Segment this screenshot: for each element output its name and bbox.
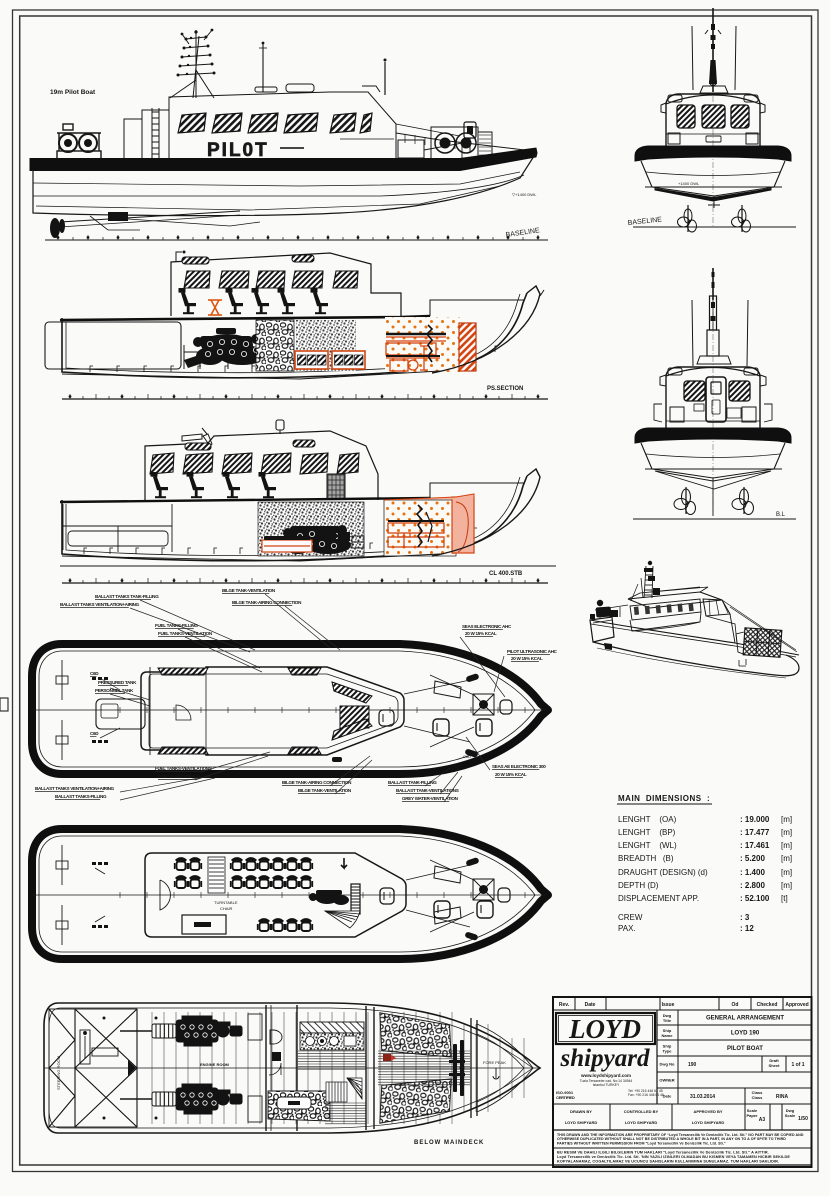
svg-text:BU RESIM VE DAHILI ILGILI BILG: BU RESIM VE DAHILI ILGILI BILGILERIN TUM… <box>557 1151 769 1155</box>
svg-text:APPROVED BY: APPROVED BY <box>693 1109 722 1114</box>
svg-text:RINA: RINA <box>776 1094 789 1100</box>
svg-text:190: 190 <box>688 1062 697 1068</box>
svg-text:Fax: +90 216 446 61 46: Fax: +90 216 446 61 46 <box>628 1093 664 1097</box>
svg-text:BILGE TANK-VENTILATION: BILGE TANK-VENTILATION <box>222 588 276 593</box>
svg-text:shipyard: shipyard <box>560 1045 650 1072</box>
svg-text:Title: Title <box>663 1018 672 1023</box>
svg-text:: 17.477: : 17.477 <box>740 828 770 837</box>
svg-text:PAX.: PAX. <box>618 924 636 933</box>
svg-text:ENGINE ROOM: ENGINE ROOM <box>200 1062 230 1067</box>
svg-text:Od: Od <box>732 1002 739 1008</box>
svg-text:LOYD 190: LOYD 190 <box>731 1031 760 1037</box>
svg-text:GREY WATER-VENTILATION: GREY WATER-VENTILATION <box>402 796 459 801</box>
svg-text:Name: Name <box>662 1033 674 1038</box>
svg-text:OWNER: OWNER <box>659 1078 674 1083</box>
svg-text:PERSONNEL TANK: PERSONNEL TANK <box>95 688 134 693</box>
svg-text:LOYD SHIPYARD: LOYD SHIPYARD <box>625 1120 658 1125</box>
svg-text:1/50: 1/50 <box>798 1116 808 1122</box>
svg-text:LOYD: LOYD <box>568 1014 641 1044</box>
svg-text:BALLAST TANK-VENTILATIONS: BALLAST TANK-VENTILATIONS <box>396 788 459 793</box>
svg-text:LENGHT (BP): LENGHT (BP) <box>618 828 676 837</box>
svg-text:PILOT BOAT: PILOT BOAT <box>727 1046 763 1052</box>
svg-text:SEAS AE ELECTRONIC 300: SEAS AE ELECTRONIC 300 <box>492 764 546 769</box>
svg-text:: 12: : 12 <box>740 924 754 933</box>
svg-text:: 5.200: : 5.200 <box>740 854 765 863</box>
svg-text:TURNTABLE: TURNTABLE <box>214 900 238 905</box>
svg-text:: 52.100: : 52.100 <box>740 894 770 903</box>
svg-text:KOPYALANAMAZ, COGALTILAMAZ VE: KOPYALANAMAZ, COGALTILAMAZ VE UCUNCU SAH… <box>557 1159 779 1163</box>
svg-text:BALLAST TANKS VENTILATION+AIRI: BALLAST TANKS VENTILATION+AIRING <box>35 786 115 791</box>
svg-text:PIL0T: PIL0T <box>207 140 269 161</box>
svg-text:FORE PEAK: FORE PEAK <box>483 1060 506 1065</box>
svg-text:Loyd Tersanecilik ve Denizcili: Loyd Tersanecilik ve Denizcilik Tic. Ltd… <box>557 1155 790 1159</box>
svg-text:DRAWN BY: DRAWN BY <box>570 1109 592 1114</box>
svg-text:Dwg No: Dwg No <box>660 1062 675 1067</box>
svg-text:[m]: [m] <box>781 854 792 863</box>
svg-text:B.L: B.L <box>776 512 786 518</box>
svg-text:Class: Class <box>752 1095 763 1100</box>
svg-text:LOYD SHIPYARD: LOYD SHIPYARD <box>692 1120 725 1125</box>
svg-text:DRAUGHT (DESIGN) (d): DRAUGHT (DESIGN) (d) <box>618 868 708 877</box>
svg-text:PS.SECTION: PS.SECTION <box>487 386 523 392</box>
svg-text:: 17.461: : 17.461 <box>740 841 770 850</box>
svg-text:C6D: C6D <box>463 754 471 759</box>
svg-text:: 3: : 3 <box>740 913 750 922</box>
svg-text:C6D: C6D <box>90 671 99 676</box>
svg-text:Type: Type <box>662 1049 672 1054</box>
svg-text:BILGE TANK-VENTILATION: BILGE TANK-VENTILATION <box>298 788 352 793</box>
svg-text:Scale: Scale <box>785 1113 796 1118</box>
svg-text:20 W 15% KCAL: 20 W 15% KCAL <box>511 656 543 661</box>
svg-text:CREW: CREW <box>618 913 643 922</box>
svg-text:CHAIR: CHAIR <box>220 906 233 911</box>
svg-text:1 of 1: 1 of 1 <box>791 1062 804 1068</box>
svg-text:[m]: [m] <box>781 868 792 877</box>
svg-text:PARTIES WITHOUT WRITTEN PERM: PARTIES WITHOUT WRITTEN PERMISSION FROM … <box>557 1141 726 1145</box>
svg-text:www.loydshipyard.com: www.loydshipyard.com <box>580 1073 631 1078</box>
svg-text:BALLAST TANKS TANK-FILLING: BALLAST TANKS TANK-FILLING <box>95 594 159 599</box>
svg-text:FUEL TANKS-VENTILATIONS: FUEL TANKS-VENTILATIONS <box>155 766 212 771</box>
svg-text:C6D: C6D <box>456 650 464 655</box>
svg-text:19m Pilot Boat: 19m Pilot Boat <box>50 89 96 96</box>
svg-text:Date: Date <box>663 1094 672 1099</box>
svg-text:: 1.400: : 1.400 <box>740 868 765 877</box>
svg-text:▽+1400 DWL: ▽+1400 DWL <box>512 192 537 197</box>
svg-text:Sheet: Sheet <box>769 1063 781 1068</box>
svg-text:C6D: C6D <box>90 731 99 736</box>
svg-text:FUEL TANKS-FILLING: FUEL TANKS-FILLING <box>158 774 201 779</box>
svg-text:BALLAST TANKS-FILLING: BALLAST TANKS-FILLING <box>55 794 107 799</box>
svg-text:+1400 DWL: +1400 DWL <box>678 181 700 186</box>
svg-text:Checked: Checked <box>757 1002 778 1008</box>
svg-text:DISPLACEMENT APP.: DISPLACEMENT APP. <box>618 894 699 903</box>
svg-text:Istanbul TURKEY: Istanbul TURKEY <box>593 1083 620 1087</box>
svg-text:DEPTH (D): DEPTH (D) <box>618 881 659 890</box>
svg-text:CONTROLLED BY: CONTROLLED BY <box>624 1109 659 1114</box>
svg-text:LENGHT (WL): LENGHT (WL) <box>618 841 677 850</box>
svg-text:BILGE TANK-AIRING CONNECTION: BILGE TANK-AIRING CONNECTION <box>232 600 302 605</box>
svg-text:PILOT ULTRASONIC AHC: PILOT ULTRASONIC AHC <box>507 649 558 654</box>
svg-text:[m]: [m] <box>781 828 792 837</box>
svg-text:CERTIFIED: CERTIFIED <box>556 1095 575 1100</box>
svg-text:STEERING ROOM: STEERING ROOM <box>56 1056 61 1090</box>
svg-text:MAIN DIMENSIONS :: MAIN DIMENSIONS : <box>618 794 710 803</box>
svg-text:Date: Date <box>585 1002 596 1008</box>
svg-text:[t]: [t] <box>781 894 788 903</box>
svg-text:[m]: [m] <box>781 881 792 890</box>
svg-text:: 2.800: : 2.800 <box>740 881 765 890</box>
svg-text:20 W 15% KCAL: 20 W 15% KCAL <box>495 772 527 777</box>
svg-text:FUEL TANKS-FILLING: FUEL TANKS-FILLING <box>155 623 198 628</box>
svg-text:LENGHT (OA): LENGHT (OA) <box>618 815 677 824</box>
svg-text:CL 400.STB: CL 400.STB <box>489 571 523 577</box>
svg-text:31.03.2014: 31.03.2014 <box>690 1094 715 1100</box>
svg-text:SEAS ELECTRONIC AHC: SEAS ELECTRONIC AHC <box>462 624 512 629</box>
svg-text:FUEL TANKS-VENTILATION: FUEL TANKS-VENTILATION <box>158 631 213 636</box>
svg-text:A3: A3 <box>759 1117 766 1123</box>
svg-text:BREADTH (B): BREADTH (B) <box>618 854 674 863</box>
svg-text:BALLAST TANKS VENTILATION+AIRI: BALLAST TANKS VENTILATION+AIRING <box>60 602 140 607</box>
svg-text:Issue: Issue <box>662 1002 675 1008</box>
svg-text:: 19.000: : 19.000 <box>740 815 770 824</box>
svg-text:Approved: Approved <box>785 1002 808 1008</box>
svg-text:BELOW MAINDECK: BELOW MAINDECK <box>414 1140 484 1146</box>
svg-text:Paper: Paper <box>746 1113 758 1118</box>
svg-text:PRESSURED TANK: PRESSURED TANK <box>98 680 137 685</box>
svg-text:[m]: [m] <box>781 815 792 824</box>
svg-text:BILGE TANK-AIRING CONNECTION: BILGE TANK-AIRING CONNECTION <box>282 780 352 785</box>
svg-text:[m]: [m] <box>781 841 792 850</box>
svg-text:LOYD SHIPYARD: LOYD SHIPYARD <box>565 1120 598 1125</box>
svg-text:20 W 15% KCAL: 20 W 15% KCAL <box>465 631 497 636</box>
svg-text:Rev.: Rev. <box>559 1002 570 1008</box>
svg-text:GENERAL ARRANGEMENT: GENERAL ARRANGEMENT <box>706 1016 784 1022</box>
